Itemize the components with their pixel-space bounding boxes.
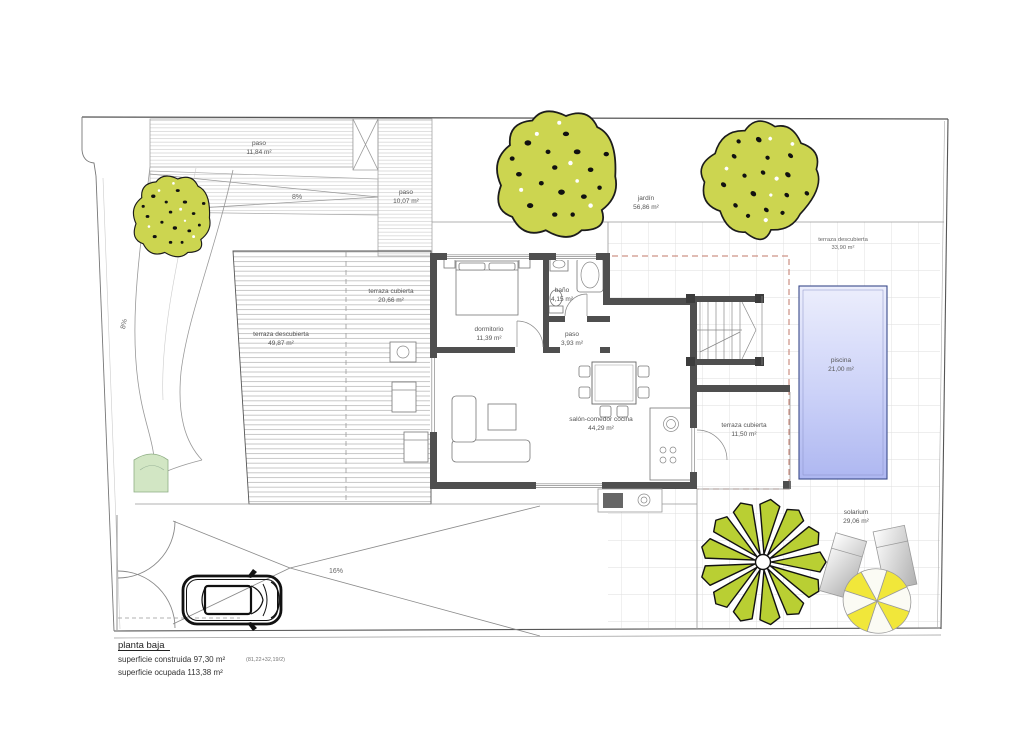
swimming-pool (799, 286, 887, 479)
label-paso-top-area: 11,84 m² (246, 149, 272, 156)
tree-icon (133, 176, 210, 257)
tree-icon (497, 111, 616, 237)
label-jardin-area: 56,86 m² (633, 204, 659, 211)
plan-title: planta baja (118, 640, 165, 651)
label-paso-top-name: paso (252, 140, 266, 147)
porch-bbq (598, 489, 662, 512)
floor-plan-sheet: paso 11,84 m² paso 10,07 m² jardín 56,86… (0, 0, 1024, 732)
label-terraza-cub-oeste-area: 20,66 m² (378, 297, 404, 304)
label-terraza-desc-name: terraza descubierta (253, 331, 309, 338)
label-paso-mid-area: 10,07 m² (393, 198, 419, 205)
entrance-gate (117, 515, 175, 630)
label-piscina-area: 21,00 m² (828, 366, 854, 373)
label-dormitorio-name: dormitorio (475, 326, 504, 333)
label-terraza-ne-name: terraza descubierta (818, 237, 868, 243)
floor-plan-drawing: paso 11,84 m² paso 10,07 m² jardín 56,86… (0, 0, 1024, 732)
label-paso-mid-name: paso (399, 189, 413, 196)
label-bano-name: baño (555, 287, 570, 294)
parking-ramp (173, 506, 540, 636)
label-bano-area: 4,15 m² (551, 296, 574, 303)
label-terraza-desc-area: 49,87 m² (268, 340, 294, 347)
car-icon (183, 569, 281, 631)
label-solarium-area: 29,06 m² (843, 518, 869, 525)
built-area-note: (81,22+32,19/2) (246, 657, 285, 663)
label-slope-top: 8% (292, 194, 302, 201)
label-paso-int-name: paso (565, 331, 579, 338)
label-jardin-name: jardín (637, 195, 655, 202)
title-block: planta baja superficie construida 97,30 … (118, 640, 285, 677)
label-paso-int-area: 3,93 m² (561, 340, 584, 347)
built-area-text: superficie construida 97,30 m² (118, 655, 226, 664)
label-salon-area: 44,29 m² (588, 425, 614, 432)
label-terraza-ne-area: 33,90 m² (832, 245, 855, 251)
label-salon-name: salón-comedor cocina (569, 416, 633, 423)
label-terraza-cub-oeste-name: terraza cubierta (368, 288, 414, 295)
label-dormitorio-area: 11,39 m² (476, 335, 502, 342)
label-terraza-cub-este-name: terraza cubierta (721, 422, 767, 429)
label-solarium-name: solarium (844, 509, 869, 516)
occupied-area-text: superficie ocupada 113,38 m² (118, 668, 223, 677)
label-piscina-name: piscina (831, 357, 852, 364)
grass-patch (134, 454, 168, 492)
label-slope-ramp: 16% (329, 568, 343, 575)
label-slope-drive: 8% (120, 318, 129, 329)
label-terraza-cub-este-area: 11,50 m² (731, 431, 757, 438)
